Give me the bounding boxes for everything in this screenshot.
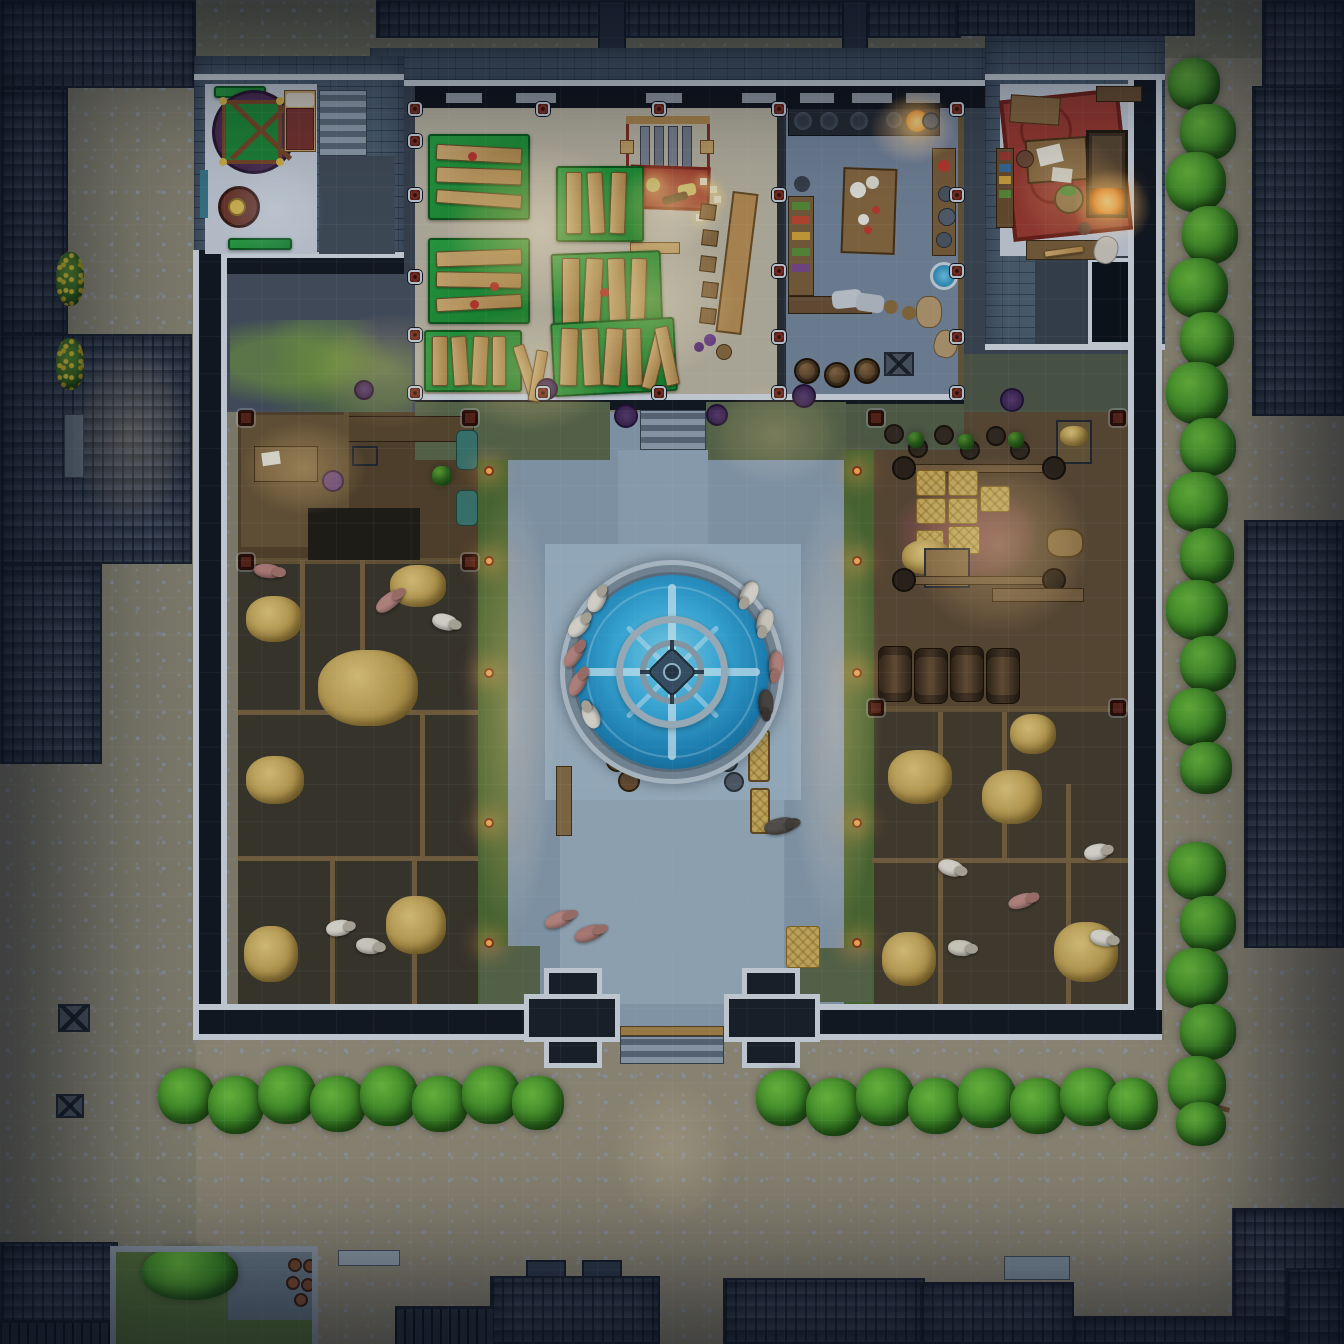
wall-south-left-dark — [199, 1010, 529, 1034]
study-side-desk — [1009, 94, 1061, 125]
study-chair — [1016, 150, 1034, 168]
stable-bedroll-1 — [456, 430, 478, 470]
bedroom-knob-2 — [276, 97, 284, 105]
stall-2-plank-a — [566, 172, 582, 234]
hedge-east-5 — [1168, 258, 1228, 318]
study-book-4 — [999, 190, 1011, 198]
hedge-east-3 — [1166, 152, 1226, 212]
lamp-east-1 — [852, 466, 862, 476]
lamp-east-4 — [852, 818, 862, 828]
barn-hay-s3 — [1054, 922, 1118, 982]
hedge-south-r3 — [856, 1068, 914, 1126]
hall-candle-5 — [714, 196, 721, 203]
hedge-south-l2 — [208, 1076, 264, 1134]
kitchen-pot-shelf — [794, 176, 810, 192]
stall-4-plank-c — [607, 258, 627, 329]
bedroom-knob-3 — [219, 158, 227, 166]
fence-south-1 — [0, 1320, 118, 1344]
barn-fence-h1 — [872, 858, 1128, 863]
stable-hay-5 — [244, 926, 298, 982]
wall-north-brick — [370, 48, 992, 80]
wall-south-right-dark — [816, 1010, 1162, 1034]
bedroom-knob-4 — [276, 158, 284, 166]
roof-south-4 — [920, 1282, 1074, 1344]
garden-wall-top — [110, 1246, 318, 1252]
stable-post-4 — [462, 554, 478, 570]
roof-east-1 — [1252, 86, 1344, 416]
post-kitchen-e2 — [950, 188, 964, 202]
barn-pot-1 — [884, 424, 904, 444]
hedge-south-r1 — [756, 1070, 812, 1126]
bedroom-bed-blanket — [286, 108, 314, 150]
bedroom-plate — [228, 198, 246, 216]
wall-west-dark — [199, 250, 221, 1040]
plaza-pot-5 — [724, 772, 744, 792]
plaza-bench-west — [556, 766, 572, 836]
kitchen-tomato-2 — [864, 226, 872, 234]
garden-pot-3 — [286, 1276, 300, 1290]
street-crate-west-1 — [58, 1004, 90, 1032]
garden-wall-right — [312, 1246, 318, 1344]
hall-steps — [640, 410, 706, 450]
roof-east-2 — [1244, 520, 1344, 948]
purple-bush-2 — [614, 404, 638, 428]
roof-south-strip — [1072, 1316, 1290, 1344]
barn-hay-s2 — [982, 770, 1042, 824]
stall-cup-1 — [468, 152, 477, 161]
hedge-south-l5 — [360, 1066, 418, 1126]
stable-hay-6 — [386, 896, 446, 954]
hall-candle-4 — [710, 186, 717, 193]
purple-bush-6 — [1000, 388, 1024, 412]
stable-hay-3 — [390, 565, 446, 607]
barn-hay-b — [948, 470, 978, 496]
hedge-south-l3 — [258, 1066, 316, 1124]
bedroom-bench-south — [228, 238, 292, 250]
plaza-hay-bale — [786, 926, 820, 968]
stall-cup-3 — [470, 300, 479, 309]
roof-south-3 — [723, 1278, 925, 1344]
hall-chair-1 — [699, 203, 717, 221]
kitchen-burner-4 — [886, 112, 902, 128]
barn-hay-c — [916, 498, 946, 524]
kitchen-produce-4 — [792, 248, 810, 256]
tower-gate-left-h — [524, 994, 620, 1042]
lamp-east-2 — [852, 556, 862, 566]
kitchen-burner-1 — [794, 112, 812, 130]
barn-crate-hay-top — [1060, 426, 1088, 446]
study-book-1 — [999, 152, 1011, 160]
hall-chair-5 — [699, 307, 717, 325]
hall-stool — [716, 344, 732, 360]
post-div-5 — [772, 386, 786, 400]
post-hall-n1 — [536, 102, 550, 116]
hedge-south-r5 — [958, 1068, 1016, 1128]
barn-pot-5 — [986, 426, 1006, 446]
stall-5-plank-c — [471, 336, 490, 387]
barn-rail-post-2a — [892, 568, 916, 592]
barn-hay-e — [980, 486, 1010, 512]
barn-post-2 — [1110, 410, 1126, 426]
barn-plant-3 — [1008, 432, 1024, 448]
garden-pot-5 — [294, 1293, 308, 1307]
stable-fence-h2 — [238, 856, 478, 861]
kitchen-barrel-2 — [824, 362, 850, 388]
chimney-north-2 — [842, 0, 868, 54]
hall-chair-2 — [701, 229, 719, 247]
barn-rail-post-1b — [1042, 456, 1066, 480]
kitchen-produce-2 — [792, 216, 810, 224]
hall-chair-3 — [699, 255, 717, 273]
battle-map — [0, 0, 1344, 1344]
barn-hay-s4 — [882, 932, 936, 986]
fence-south-2 — [395, 1306, 493, 1344]
hedge-east-6 — [1180, 312, 1234, 368]
study-book-3 — [999, 176, 1011, 184]
hedge-south-r2 — [806, 1078, 862, 1136]
kitchen-pot — [922, 112, 940, 130]
hedge-east-10 — [1180, 528, 1234, 584]
roof-northwest — [0, 0, 196, 88]
kitchen-flour-2 — [866, 176, 879, 189]
hall-loom-plank-4 — [682, 126, 692, 170]
bedroom-nw-corridor — [319, 156, 395, 254]
wall-south-right-trim-b — [816, 1034, 1162, 1040]
hedge-south-r4 — [908, 1078, 964, 1134]
hedge-east-1 — [1168, 58, 1220, 110]
hedge-south-l7 — [462, 1066, 520, 1124]
barn-post-4 — [1110, 700, 1126, 716]
roof-northeast-a — [955, 0, 1195, 36]
barn-post-3 — [868, 700, 884, 716]
study-book-2 — [999, 164, 1011, 172]
hedge-south-l1 — [158, 1068, 214, 1124]
wall-south-left-trim-b — [199, 1034, 529, 1040]
street-bench-southeast — [1004, 1256, 1070, 1280]
stable-door-opening — [308, 508, 420, 560]
fountain-center-cap — [663, 663, 681, 681]
purple-bush-5 — [354, 380, 374, 400]
kitchen-jar-1 — [884, 300, 898, 314]
study-bed-mattress — [1092, 136, 1122, 188]
stall-6-plank-d — [625, 328, 643, 387]
study-stool — [1078, 222, 1091, 235]
stall-2-plank-c — [609, 172, 627, 235]
stall-cup-2 — [490, 282, 499, 291]
hall-kitchen-divider — [777, 108, 786, 394]
roof-south-2 — [490, 1276, 660, 1344]
hedge-south-l8 — [512, 1076, 564, 1130]
study-bookshelf — [996, 148, 1014, 228]
kitchen-produce-3 — [792, 232, 810, 240]
yard-northwest-moss — [230, 320, 412, 412]
post-hall-w3 — [408, 188, 422, 202]
grass-strip-west — [478, 412, 508, 1004]
post-div-1 — [772, 102, 786, 116]
post-hall-w6 — [408, 386, 422, 400]
flower-bush-west-1 — [56, 252, 84, 306]
walk-crate-4 — [742, 93, 776, 103]
stable-crate — [352, 446, 378, 466]
stable-hay-2 — [318, 650, 418, 726]
gate-sill — [620, 1026, 724, 1036]
hedge-south-r6 — [1010, 1078, 1066, 1134]
chimney-north-1 — [598, 0, 626, 52]
roof-west-3 — [0, 564, 102, 764]
kitchen-burner-3 — [850, 112, 868, 130]
stable-post-3 — [238, 554, 254, 570]
hedge-east-20 — [1176, 1102, 1226, 1146]
post-hall-w4 — [408, 270, 422, 284]
barn-barrel-2 — [914, 648, 948, 704]
study-paper-2 — [1051, 167, 1072, 183]
hedge-south-r8 — [1108, 1078, 1158, 1130]
lamp-west-2 — [484, 556, 494, 566]
purple-bush-3 — [706, 404, 728, 426]
post-hall-s1 — [536, 386, 550, 400]
garden-pot-1 — [288, 1258, 302, 1272]
barn-barrel-3 — [950, 646, 984, 702]
post-hall-w1 — [408, 102, 422, 116]
gate-pavement — [620, 1004, 724, 1028]
roof-south-corner — [1286, 1268, 1344, 1344]
hedge-east-13 — [1168, 688, 1226, 746]
stable-post-2 — [462, 410, 478, 426]
walk-crate-6 — [852, 93, 892, 103]
roof-west-2 — [0, 334, 192, 564]
lamp-east-5 — [852, 938, 862, 948]
lamp-west-5 — [484, 938, 494, 948]
stable-fence-v3 — [420, 712, 425, 858]
stable-post-1 — [238, 410, 254, 426]
stall-6-plank-a — [559, 328, 579, 387]
kitchen-pillow-2 — [855, 292, 885, 314]
barn-rail-2 — [902, 576, 1050, 585]
kitchen-greypot-3 — [936, 232, 952, 248]
stall-5-plank-d — [492, 336, 506, 386]
study-hearth-glow — [1090, 188, 1124, 214]
hedge-east-4 — [1182, 206, 1238, 264]
hall-chair-4 — [701, 281, 719, 299]
barn-hay-s1 — [888, 750, 952, 804]
hedge-south-l4 — [310, 1076, 366, 1132]
hedge-east-14 — [1180, 742, 1232, 794]
post-kitchen-e5 — [950, 386, 964, 400]
stall-4-plank-a — [562, 258, 580, 328]
post-kitchen-e3 — [950, 264, 964, 278]
hall-grapes-1 — [704, 334, 716, 346]
stall-3-plank-b — [436, 271, 522, 288]
street-bench-west — [64, 414, 84, 478]
post-div-2 — [772, 188, 786, 202]
barn-barrel-4 — [986, 648, 1020, 704]
kitchen-produce-5 — [792, 264, 810, 272]
post-hall-w2 — [408, 134, 422, 148]
stall-1-plank-b — [436, 167, 523, 186]
barn-south-wall — [872, 706, 1128, 712]
hall-grapes-2 — [694, 342, 704, 352]
barn-bench — [992, 588, 1084, 602]
hedge-east-7 — [1166, 362, 1228, 424]
flower-bush-west-2 — [56, 338, 84, 390]
hall-loom-bar — [626, 116, 710, 124]
post-hall-w5 — [408, 328, 422, 342]
kitchen-crate — [884, 352, 914, 376]
stall-3-plank-a — [436, 249, 523, 268]
garden-bench — [338, 1250, 400, 1266]
hedge-east-9 — [1168, 472, 1228, 532]
lamp-east-3 — [852, 668, 862, 678]
stable-hay-1 — [246, 596, 302, 642]
walk-crate-3 — [646, 93, 682, 103]
walk-crate-2 — [516, 93, 556, 103]
stable-fence-v1 — [300, 560, 305, 712]
gate-steps — [620, 1036, 724, 1064]
hall-loom-plank-3 — [668, 126, 678, 170]
study-basket-greens — [1060, 186, 1076, 196]
kitchen-burner-2 — [820, 112, 838, 130]
hedge-east-18 — [1180, 1004, 1236, 1060]
kitchen-shelf-west — [788, 196, 814, 296]
wall-east-dark — [1134, 80, 1156, 1010]
hall-loom-plank-2 — [654, 126, 664, 170]
tower-gate-right-h — [724, 994, 820, 1042]
lamp-west-4 — [484, 818, 494, 828]
hedge-east-12 — [1180, 636, 1236, 692]
purple-bush-4 — [792, 384, 816, 408]
hedge-east-16 — [1180, 896, 1236, 952]
barn-hay-s5 — [1010, 714, 1056, 754]
stable-hay-4 — [246, 756, 304, 804]
barn-basket — [1046, 528, 1084, 558]
kitchen-sack-1 — [916, 296, 942, 328]
kitchen-tomato-1 — [872, 206, 880, 214]
kitchen-greypot-2 — [938, 208, 956, 226]
bedroom-knob-1 — [219, 97, 227, 105]
kitchen-jar-2 — [902, 306, 916, 320]
stall-6-plank-b — [580, 328, 601, 387]
kitchen-flowers — [938, 160, 950, 172]
plaza-trough-2 — [750, 788, 770, 834]
study-top-shelf — [1096, 86, 1142, 102]
lamp-west-1 — [484, 466, 494, 476]
barn-rail-post-1a — [892, 456, 916, 480]
hedge-south-l6 — [412, 1076, 468, 1132]
bedroom-nw-stairs — [319, 90, 367, 156]
garden-hedge — [142, 1246, 238, 1300]
post-hall-s2 — [652, 386, 666, 400]
barn-barrel-1 — [878, 646, 912, 702]
post-div-4 — [772, 330, 786, 344]
hedge-east-8 — [1180, 418, 1236, 476]
barn-pot-3 — [934, 425, 954, 445]
block-northwest-trim — [194, 74, 404, 80]
kitchen-produce-1 — [792, 202, 810, 210]
stall-5-plank-b — [450, 336, 469, 387]
hall-loom-foot-1 — [620, 140, 634, 154]
kitchen-flour-3 — [858, 214, 869, 225]
stable-office-paper — [261, 451, 281, 466]
yard-northeast-moss — [964, 354, 1128, 412]
roof-north-strip — [376, 0, 961, 38]
bedroom-bed-pillow — [286, 93, 314, 107]
post-kitchen-e1 — [950, 102, 964, 116]
hall-candle-3 — [700, 178, 707, 185]
barn-plant-2 — [958, 434, 974, 450]
barn-plant-1 — [908, 432, 924, 448]
post-hall-n2 — [652, 102, 666, 116]
walk-crate-7 — [906, 93, 940, 103]
hedge-east-11 — [1166, 580, 1228, 640]
kitchen-barrel-3 — [854, 358, 880, 384]
wall-east-trim-inner — [1156, 80, 1162, 1010]
walk-crate-1 — [446, 93, 482, 103]
bedroom-wall-art — [200, 170, 208, 218]
hedge-east-17 — [1166, 948, 1228, 1008]
garden-wall-left — [110, 1246, 116, 1344]
walk-crate-5 — [800, 93, 834, 103]
stable-plant — [432, 466, 452, 486]
barn-hay-d — [948, 498, 978, 524]
stall-2-plank-b — [586, 172, 605, 235]
kitchen-barrel-1 — [794, 358, 820, 384]
stall-cup-4 — [600, 288, 609, 297]
post-div-3 — [772, 264, 786, 278]
roof-west-1 — [0, 88, 68, 334]
stable-office-chair — [322, 470, 344, 492]
plaza-walk-north — [618, 450, 708, 552]
stable-fence-v4 — [330, 856, 335, 1004]
hedge-east-15 — [1168, 842, 1226, 900]
kitchen-flour-1 — [850, 182, 866, 198]
hall-loom-plank-1 — [640, 126, 650, 170]
barn-post-1 — [868, 410, 884, 426]
hall-lamp — [646, 178, 660, 192]
barn-hay-a — [916, 470, 946, 496]
street-crate-west-2 — [56, 1094, 84, 1118]
post-kitchen-e4 — [950, 330, 964, 344]
stall-5-plank-a — [432, 336, 448, 386]
hall-loom-foot-2 — [700, 140, 714, 154]
stable-bedroll-2 — [456, 490, 478, 526]
lamp-west-3 — [484, 668, 494, 678]
